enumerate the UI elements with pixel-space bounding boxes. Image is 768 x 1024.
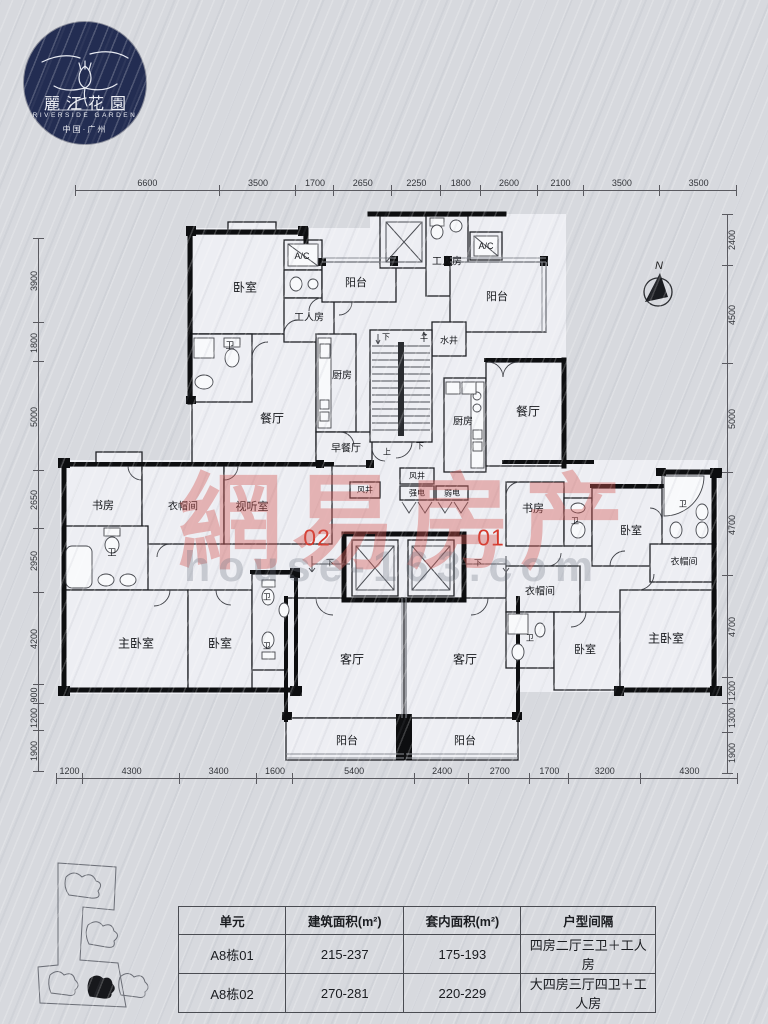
- dim-segment: 2950: [24, 529, 44, 593]
- dim-value: 4700: [727, 514, 737, 534]
- room-label-dining: 餐厅: [260, 410, 284, 427]
- dim-segment: 3500: [660, 176, 737, 196]
- cell-net-area: 175-193: [404, 935, 521, 974]
- dim-value: 2400: [727, 230, 737, 250]
- dim-segment: 1700: [296, 176, 333, 196]
- logo-location: 中国·广州: [24, 124, 146, 135]
- cell-gross-area: 270-281: [286, 974, 404, 1013]
- dim-segment: 2250: [392, 176, 441, 196]
- col-header-net-area: 套内面积(m²): [404, 907, 521, 935]
- room-label-balcony: 阳台: [345, 274, 367, 290]
- dim-value: 1700: [539, 766, 559, 776]
- room-label-living: 客厅: [340, 651, 364, 668]
- unit-spec-table: 单元 建筑面积(m²) 套内面积(m²) 户型间隔 A8栋01 215-237 …: [178, 906, 656, 1013]
- dim-value: 2400: [432, 766, 452, 776]
- dim-value: 2950: [29, 551, 39, 571]
- dim-segment: 1800: [24, 323, 44, 362]
- dim-value: 4700: [727, 617, 737, 637]
- room-label-living: 客厅: [453, 651, 477, 668]
- dim-value: 4200: [29, 629, 39, 649]
- room-label-study: 书房: [92, 497, 114, 513]
- dim-segment: 4200: [24, 593, 44, 685]
- room-label-balcony: 阳台: [486, 288, 508, 304]
- dim-segment: 6600: [75, 176, 220, 196]
- cell-unit: A8栋01: [179, 935, 286, 974]
- dim-segment: 1900: [24, 731, 44, 772]
- dim-value: 1200: [60, 766, 80, 776]
- dim-value: 1800: [29, 333, 39, 353]
- dim-value: 1600: [265, 766, 285, 776]
- cell-net-area: 220-229: [404, 974, 521, 1013]
- dim-segment: 3500: [584, 176, 661, 196]
- room-label-bedroom: 卧室: [574, 641, 596, 657]
- dim-segment: 4300: [83, 764, 180, 784]
- site-plan-sketch: [28, 855, 173, 1020]
- dim-segment: 1800: [441, 176, 480, 196]
- col-header-layout: 户型间隔: [521, 907, 656, 935]
- room-label-master-bedroom: 主卧室: [118, 635, 154, 652]
- dim-value: 2650: [29, 490, 39, 510]
- dim-value: 3500: [612, 178, 632, 188]
- dim-segment: 3400: [180, 764, 257, 784]
- room-label-dining: 餐厅: [516, 403, 540, 420]
- dim-value: 4300: [122, 766, 142, 776]
- dim-segment: 1200: [722, 678, 742, 704]
- room-label-balcony: 阳台: [454, 732, 476, 748]
- logo-name-cn: 麗江花園: [24, 90, 146, 114]
- dim-segment: 1200: [56, 764, 83, 784]
- room-label-bathroom: 卫: [225, 339, 234, 352]
- room-label-master-bedroom: 主卧室: [648, 630, 684, 647]
- dim-segment: 2650: [24, 471, 44, 529]
- table-row: A8栋02 270-281 220-229 大四房三厅四卫＋工人房: [179, 974, 656, 1013]
- dim-segment: 2400: [722, 214, 742, 266]
- room-label-bathroom: 卫: [263, 641, 271, 652]
- dim-segment: 4700: [722, 576, 742, 678]
- col-header-unit: 单元: [179, 907, 286, 935]
- cell-layout: 四房二厅三卫＋工人房: [521, 935, 656, 974]
- dim-value: 3500: [248, 178, 268, 188]
- dim-value: 6600: [137, 178, 157, 188]
- dim-value: 3400: [209, 766, 229, 776]
- dim-segment: 5000: [722, 364, 742, 473]
- room-label-bedroom: 卧室: [233, 279, 257, 296]
- stair-label-up: 上: [420, 331, 428, 342]
- dim-segment: 4500: [722, 266, 742, 364]
- room-label-kitchen: 厨房: [332, 367, 352, 382]
- dim-value: 1900: [727, 743, 737, 763]
- room-label-bathroom: 卫: [107, 546, 116, 559]
- dim-segment: 2400: [415, 764, 469, 784]
- cell-unit: A8栋02: [179, 974, 286, 1013]
- table-header-row: 单元 建筑面积(m²) 套内面积(m²) 户型间隔: [179, 907, 656, 935]
- logo-name-en: RIVERSIDE GARDEN: [24, 112, 146, 119]
- compass-north-label: N: [655, 260, 663, 272]
- room-label-bathroom: 卫: [679, 499, 687, 510]
- dim-segment: 2650: [334, 176, 392, 196]
- room-label-cloakroom: 衣帽间: [670, 555, 697, 568]
- watermark-house163-url: house-163.com: [184, 543, 601, 592]
- room-label-bathroom: 卫: [526, 633, 534, 644]
- dim-segment: 1300: [722, 704, 742, 732]
- dim-segment: 3900: [24, 238, 44, 323]
- room-label-balcony: 阳台: [336, 732, 358, 748]
- dim-segment: 1600: [257, 764, 293, 784]
- dim-segment: 2100: [538, 176, 584, 196]
- dim-value: 2100: [551, 178, 571, 188]
- dim-value: 2250: [406, 178, 426, 188]
- dim-segment: 1200: [24, 704, 44, 730]
- logo-riverside-garden: 麗江花園 RIVERSIDE GARDEN 中国·广州: [24, 22, 146, 144]
- floorplan-sheet: 麗江花園 RIVERSIDE GARDEN 中国·广州 6600 3500 17…: [0, 0, 768, 1024]
- dimension-column-left: 3900 1800 5000 2650 2950 4200 900 1200 1…: [24, 238, 44, 772]
- dim-segment: 3500: [220, 176, 297, 196]
- dim-segment: 5400: [293, 764, 415, 784]
- dim-segment: 1900: [722, 733, 742, 774]
- dim-segment: 1700: [530, 764, 568, 784]
- dim-value: 2600: [499, 178, 519, 188]
- cell-gross-area: 215-237: [286, 935, 404, 974]
- dim-segment: 900: [24, 685, 44, 705]
- dim-value: 4300: [679, 766, 699, 776]
- room-label-worker-room: 工人房: [294, 309, 324, 324]
- dim-value: 3900: [29, 270, 39, 290]
- room-label-worker-room: 工人房: [432, 253, 462, 268]
- dim-segment: 5000: [24, 362, 44, 471]
- dim-segment: 4700: [722, 473, 742, 575]
- dimension-row-top: 6600 3500 1700 2650 2250 1800 2600 2100 …: [75, 176, 737, 196]
- dim-value: 3200: [595, 766, 615, 776]
- room-label-bedroom: 卧室: [208, 635, 232, 652]
- dim-value: 2700: [490, 766, 510, 776]
- room-label-ac: A/C: [478, 241, 493, 251]
- col-header-gross-area: 建筑面积(m²): [286, 907, 404, 935]
- dimension-row-bottom: 1200 4300 3400 1600 5400 2400 2700 1700 …: [56, 764, 738, 784]
- cell-layout: 大四房三厅四卫＋工人房: [521, 974, 656, 1013]
- dim-value: 4500: [727, 305, 737, 325]
- stair-label-down: 下: [382, 332, 390, 343]
- room-label-ac: A/C: [294, 251, 309, 261]
- dim-value: 5400: [344, 766, 364, 776]
- room-label-kitchen: 厨房: [453, 413, 473, 428]
- table-row: A8栋01 215-237 175-193 四房二厅三卫＋工人房: [179, 935, 656, 974]
- dim-segment: 2600: [481, 176, 538, 196]
- dim-value: 1800: [451, 178, 471, 188]
- dim-value: 1300: [727, 708, 737, 728]
- dim-value: 1200: [727, 681, 737, 701]
- dim-value: 900: [29, 687, 39, 702]
- dimension-column-right: 2400 4500 5000 4700 4700 1200 1300 1900: [722, 214, 742, 774]
- dim-value: 1900: [29, 741, 39, 761]
- dim-value: 5000: [727, 409, 737, 429]
- north-compass-icon: [644, 273, 672, 306]
- dim-value: 1200: [29, 708, 39, 728]
- room-label-water-shaft: 水井: [440, 334, 458, 347]
- dim-value: 1700: [305, 178, 325, 188]
- dim-value: 3500: [689, 178, 709, 188]
- dim-segment: 3200: [569, 764, 641, 784]
- room-label-bathroom: 卫: [263, 592, 271, 603]
- dim-value: 5000: [29, 407, 39, 427]
- dim-value: 2650: [353, 178, 373, 188]
- dim-segment: 2700: [469, 764, 530, 784]
